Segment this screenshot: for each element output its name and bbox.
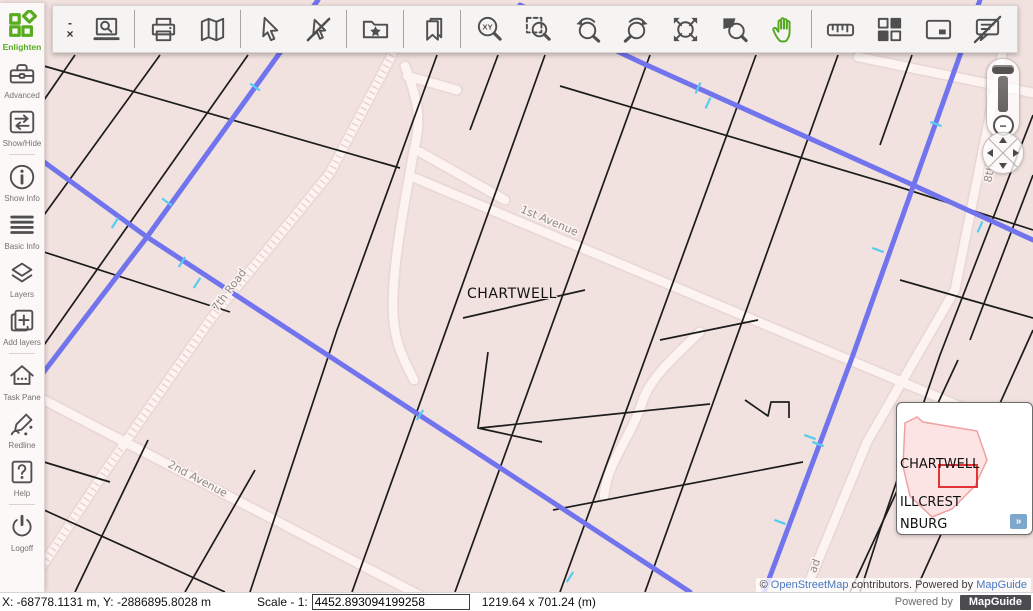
- bookmarks-icon: [417, 14, 448, 45]
- overview-label-illcrest: ILLCREST: [900, 495, 961, 510]
- cursor-coordinates: X: -68778.1131 m, Y: -2886895.8028 m: [2, 595, 211, 609]
- clear-selection-button[interactable]: [297, 8, 339, 50]
- toolbar-divider: [403, 10, 404, 48]
- overview-map-inset[interactable]: CHARTWELL ILLCREST NBURG »: [896, 402, 1033, 535]
- sidebar-item-redline[interactable]: Redline: [0, 402, 44, 450]
- main-toolbar: - ×: [52, 5, 1018, 53]
- sidebar: Enlighten Advanced Show/Hide Show Info B: [0, 3, 45, 592]
- view-size-readout: 1219.64 x 701.24 (m): [482, 595, 596, 609]
- mapguide-link[interactable]: MapGuide: [976, 579, 1027, 591]
- previous-view-button[interactable]: [566, 8, 608, 50]
- brand-label: Enlighten: [3, 42, 42, 52]
- sidebar-item-layers[interactable]: Layers: [0, 251, 44, 299]
- pan-pad-cross-lines: [989, 139, 1017, 167]
- mapguide-badge[interactable]: MapGuide: [960, 595, 1031, 610]
- enlighten-logo[interactable]: Enlighten: [0, 3, 44, 52]
- map-canvas[interactable]: 1st Avenue CHARTWELL 7th Road 2nd Avenue…: [0, 0, 1033, 592]
- info-circle-icon: [7, 162, 37, 192]
- house-icon: [7, 361, 37, 391]
- clear-selection-icon: [303, 14, 334, 45]
- pan-left-arrow[interactable]: [987, 149, 993, 157]
- sidebar-item-task-pane[interactable]: Task Pane: [0, 354, 44, 402]
- enlighten-logo-icon: [7, 10, 37, 40]
- toolbar-divider: [811, 10, 812, 48]
- status-bar: X: -68778.1131 m, Y: -2886895.8028 m Sca…: [0, 592, 1033, 611]
- toolbar-close-button[interactable]: ×: [66, 29, 73, 40]
- sidebar-item-help[interactable]: Help: [0, 450, 44, 498]
- map-attribution: © OpenStreetMap contributors. Powered by…: [756, 578, 1031, 592]
- powered-by-label: Powered by: [895, 596, 953, 608]
- layers-icon: [7, 258, 37, 288]
- save-map-button[interactable]: [354, 8, 396, 50]
- measure-button[interactable]: [819, 8, 861, 50]
- scale-label: Scale - 1:: [257, 595, 308, 609]
- overview-expand-button[interactable]: »: [1010, 514, 1027, 529]
- pan-hand-icon: [768, 14, 799, 45]
- maptip-off-icon: [972, 14, 1003, 45]
- print-button[interactable]: [142, 8, 184, 50]
- add-layers-icon: [7, 306, 37, 336]
- overview-label-chartwell: CHARTWELL: [900, 457, 980, 472]
- pan-button[interactable]: [762, 8, 804, 50]
- bookmarks-button[interactable]: [411, 8, 453, 50]
- toolbar-divider: [460, 10, 461, 48]
- previous-view-icon: [572, 14, 603, 45]
- place-label-chartwell: CHARTWELL: [467, 286, 557, 302]
- zoom-xy-icon: XY: [474, 14, 505, 45]
- toolbar-window-buttons: - ×: [62, 18, 78, 40]
- print-icon: [148, 14, 179, 45]
- overview-label-nburg: NBURG: [900, 517, 947, 532]
- pencil-scribble-icon: [7, 409, 37, 439]
- zoom-slider-track[interactable]: [998, 76, 1008, 112]
- quick-plot-icon: [91, 14, 122, 45]
- toolbar-divider: [346, 10, 347, 48]
- save-map-folder-star-icon: [360, 14, 391, 45]
- select-arrow-icon: [254, 14, 285, 45]
- measure-ruler-icon: [825, 14, 856, 45]
- attribution-text: contributors. Powered by: [848, 579, 976, 591]
- question-mark-icon: [7, 457, 37, 487]
- attribution-copyright: ©: [760, 579, 771, 591]
- zoom-rectangle-icon: [523, 14, 554, 45]
- zoom-extents-icon: [670, 14, 701, 45]
- sidebar-item-show-info[interactable]: Show Info: [0, 155, 44, 203]
- overview-map-button[interactable]: [917, 8, 959, 50]
- zoom-extents-button[interactable]: [664, 8, 706, 50]
- zoom-slider[interactable]: −: [986, 58, 1020, 138]
- sidebar-item-basic-info[interactable]: Basic Info: [0, 203, 44, 251]
- zoom-xy-button[interactable]: XY: [468, 8, 510, 50]
- zoom-to-selection-button[interactable]: [713, 8, 755, 50]
- list-lines-icon: [7, 210, 37, 240]
- openstreetmap-link[interactable]: OpenStreetMap: [771, 579, 849, 591]
- sidebar-item-add-layers[interactable]: Add layers: [0, 299, 44, 347]
- view-size-grid-icon: [874, 14, 905, 45]
- power-icon: [7, 512, 37, 542]
- zoom-rectangle-button[interactable]: [517, 8, 559, 50]
- zoom-to-selection-icon: [719, 14, 750, 45]
- next-view-button[interactable]: [615, 8, 657, 50]
- zoom-slider-handle[interactable]: [992, 65, 1014, 74]
- sidebar-item-advanced[interactable]: Advanced: [0, 52, 44, 100]
- show-hide-arrows-icon: [7, 107, 37, 137]
- toolbar-divider: [134, 10, 135, 48]
- folded-map-icon: [197, 14, 228, 45]
- overview-map-icon: [923, 14, 954, 45]
- pan-down-arrow[interactable]: [999, 163, 1007, 169]
- sidebar-item-show-hide[interactable]: Show/Hide: [0, 100, 44, 148]
- svg-text:XY: XY: [482, 22, 493, 31]
- quick-plot-button[interactable]: [85, 8, 127, 50]
- maptip-button[interactable]: [966, 8, 1008, 50]
- maps-button[interactable]: [191, 8, 233, 50]
- next-view-icon: [621, 14, 652, 45]
- select-button[interactable]: [248, 8, 290, 50]
- pan-pad[interactable]: [982, 132, 1024, 174]
- toolbar-divider: [240, 10, 241, 48]
- pan-right-arrow[interactable]: [1013, 149, 1019, 157]
- pan-up-arrow[interactable]: [999, 137, 1007, 143]
- toolbox-icon: [7, 59, 37, 89]
- view-size-button[interactable]: [868, 8, 910, 50]
- sidebar-item-logoff[interactable]: Logoff: [0, 505, 44, 553]
- scale-input[interactable]: [312, 594, 470, 610]
